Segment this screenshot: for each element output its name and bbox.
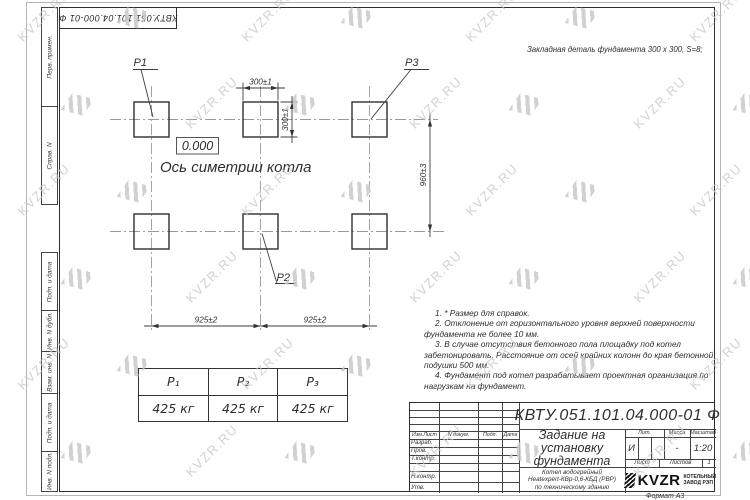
boiler-axis-label: Ось симетрии котла <box>160 159 311 176</box>
dim-col-spacing-right: 925±2 <box>304 316 327 325</box>
pad-label-p3: P3 <box>405 57 419 69</box>
pad-label-p2: P2 <box>277 272 290 284</box>
dim-row-spacing: 960±3 <box>419 163 428 186</box>
centerlines <box>110 86 444 333</box>
pad-label-p1: P1 <box>134 57 147 69</box>
dim-col-spacing-left: 925±2 <box>195 316 218 325</box>
dim-height-side: 300±1 <box>281 108 290 131</box>
elevation-value: 0.000 <box>182 139 213 153</box>
foundation-plan-drawing: P1 P3 P2 300±1 300±1 960±3 925±2 925±2 0… <box>0 0 750 500</box>
dim-width-top: 300±1 <box>249 78 272 87</box>
